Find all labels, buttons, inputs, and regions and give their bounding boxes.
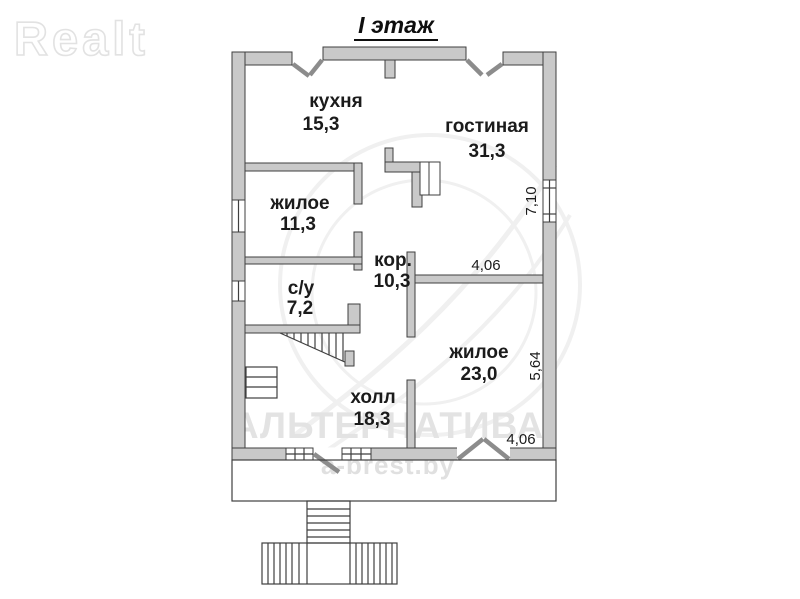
porch-steps-landing bbox=[262, 543, 397, 584]
room-area-living: 31,3 bbox=[469, 141, 506, 162]
room-area-hall: 18,3 bbox=[354, 409, 391, 430]
page-title: I этаж bbox=[358, 12, 435, 38]
room-label-bedroom-small: жилое bbox=[269, 193, 329, 214]
window-top-right bbox=[467, 60, 502, 75]
wall-left bbox=[232, 52, 245, 460]
floorplan-drawing: АЛЬТЕРНАТИВА a-brest.by Realt I этаж bbox=[0, 0, 800, 599]
dim-bottom: 4,06 bbox=[506, 431, 535, 448]
stove-flue-2 bbox=[429, 162, 440, 195]
room-label-living: гостиная bbox=[445, 116, 529, 137]
wall-bedroom-bathroom bbox=[245, 257, 362, 264]
window-left-upper bbox=[232, 200, 245, 232]
realt-logo: Realt bbox=[14, 12, 149, 65]
stair-wall-stub bbox=[345, 351, 354, 366]
room-area-bedroom-small: 11,3 bbox=[280, 214, 316, 235]
room-label-corridor: кор. bbox=[374, 250, 412, 271]
wall-bathroom-bottom bbox=[245, 325, 360, 333]
room-area-kitchen: 15,3 bbox=[303, 114, 340, 135]
room-area-bathroom: 7,2 bbox=[287, 298, 313, 319]
room-label-bathroom: с/у bbox=[288, 278, 315, 299]
window-bottom-left bbox=[286, 448, 313, 460]
wall-bedroom-corridor-upper bbox=[354, 163, 362, 204]
wall-living-bedroom bbox=[415, 275, 543, 283]
window-right bbox=[543, 180, 556, 222]
wall-kitchen-bedroom bbox=[245, 163, 362, 171]
stair-diagonal bbox=[280, 333, 347, 363]
watermark-circle-inner bbox=[312, 180, 536, 404]
stove-flue-1 bbox=[420, 162, 429, 195]
room-label-bedroom-large: жилое bbox=[448, 342, 508, 363]
floorplan-page: АЛЬТЕРНАТИВА a-brest.by Realt I этаж bbox=[0, 0, 800, 599]
stair-winders bbox=[246, 367, 277, 398]
chimney-block bbox=[385, 148, 440, 207]
wall-right bbox=[543, 52, 556, 460]
window-bottom-middle bbox=[342, 448, 371, 460]
room-label-kitchen: кухня bbox=[309, 91, 362, 112]
wall-top-middle bbox=[323, 47, 466, 60]
dim-right-upper: 7,10 bbox=[523, 186, 540, 215]
dim-right-lower: 5,64 bbox=[527, 351, 544, 380]
wall-bathroom-corner bbox=[348, 304, 360, 325]
dim-middle: 4,06 bbox=[471, 257, 500, 274]
room-area-bedroom-large: 23,0 bbox=[461, 364, 498, 385]
porch-steps-flight bbox=[307, 501, 350, 543]
window-left-lower bbox=[232, 281, 245, 301]
wall-center-lower bbox=[407, 380, 415, 448]
room-label-hall: холл bbox=[350, 387, 395, 408]
room-area-corridor: 10,3 bbox=[374, 271, 411, 292]
watermark-swoosh bbox=[295, 165, 555, 435]
window-top-left bbox=[293, 60, 322, 76]
wall-stub-top-window bbox=[385, 60, 395, 78]
